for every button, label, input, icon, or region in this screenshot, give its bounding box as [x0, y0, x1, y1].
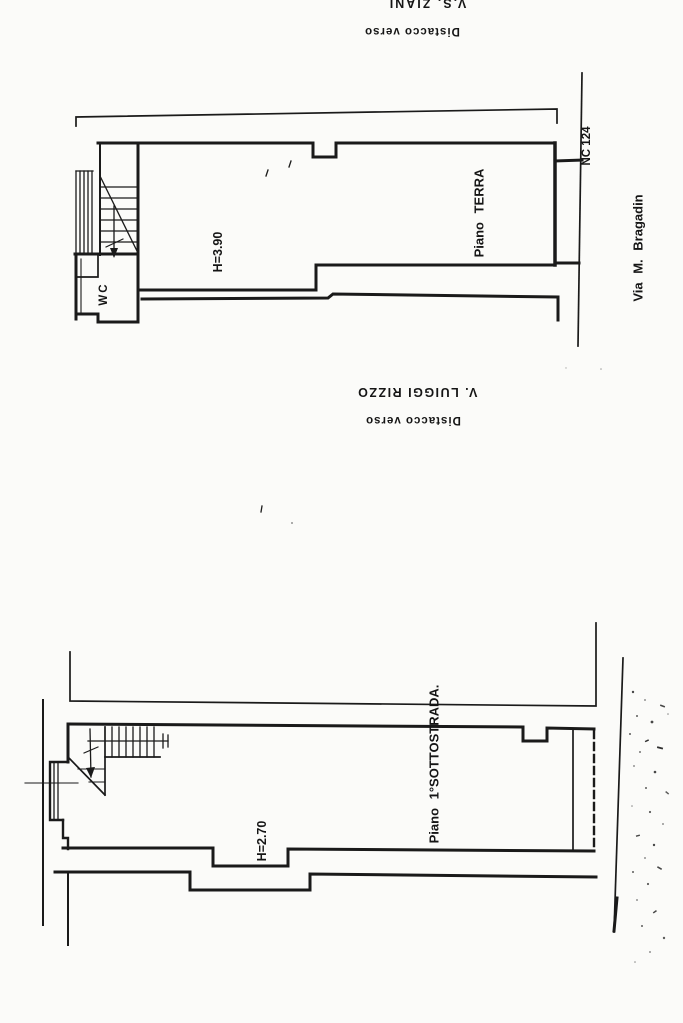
wc-room: WC [75, 254, 138, 322]
stray-dot-mid [291, 522, 293, 524]
wall-bottom-outer [142, 294, 558, 320]
ground-floor-plan: WC H=3.90 Piano TERRA NC 124 [75, 73, 593, 346]
mid-annotations: V. LUIGGI RIZZO Distacco verso [261, 385, 477, 524]
stairwell-basement [68, 727, 168, 795]
stray-marks-ground [266, 161, 291, 176]
wall-top [98, 143, 555, 157]
label-setback-top: Distacco verso [364, 25, 460, 37]
ramp-shaft-basement [25, 762, 78, 849]
label-setback-mid: Distacco verso [365, 414, 461, 426]
street-line-bragadin [578, 73, 582, 346]
basement-plan: H=2.70 Piano 1°SOTTOSTRADA. [25, 623, 623, 945]
label-street-mid: V. LUIGGI RIZZO [357, 385, 478, 399]
top-annotations: V.S. ZIANI Distacco verso [364, 0, 466, 37]
label-ground-floor-name: Piano TERRA [472, 168, 487, 257]
boundary-line-top [76, 109, 557, 126]
ramp-shaft-ground [76, 171, 93, 253]
label-ground-height: H=3.90 [211, 232, 225, 273]
label-basement-height: H=2.70 [255, 821, 269, 862]
label-basement-name: Piano 1°SOTTOSTRADA. [427, 685, 442, 844]
label-street-top: V.S. ZIANI [388, 0, 467, 10]
label-entrance-number: NC 124 [581, 126, 593, 166]
winder-hypotenuse [68, 757, 105, 795]
wall-bottom-inner [140, 265, 555, 290]
facade-passage-top [555, 160, 582, 161]
boundary-line-basement [70, 623, 596, 706]
basement-wall-bottom-inner [63, 848, 594, 866]
label-wc: WC [98, 282, 110, 305]
floorplan-drawing: WC H=3.90 Piano TERRA NC 124 Via M. Brag… [0, 0, 683, 1023]
stray-marks-mid [261, 506, 262, 512]
scan-noise-speckles [565, 367, 669, 963]
floorplan-sheet: WC H=3.90 Piano TERRA NC 124 Via M. Brag… [0, 0, 683, 1023]
street-line-basement [614, 658, 623, 932]
basement-wall-bottom-outer [55, 872, 596, 890]
label-street-right: Via M. Bragadin [631, 194, 646, 301]
